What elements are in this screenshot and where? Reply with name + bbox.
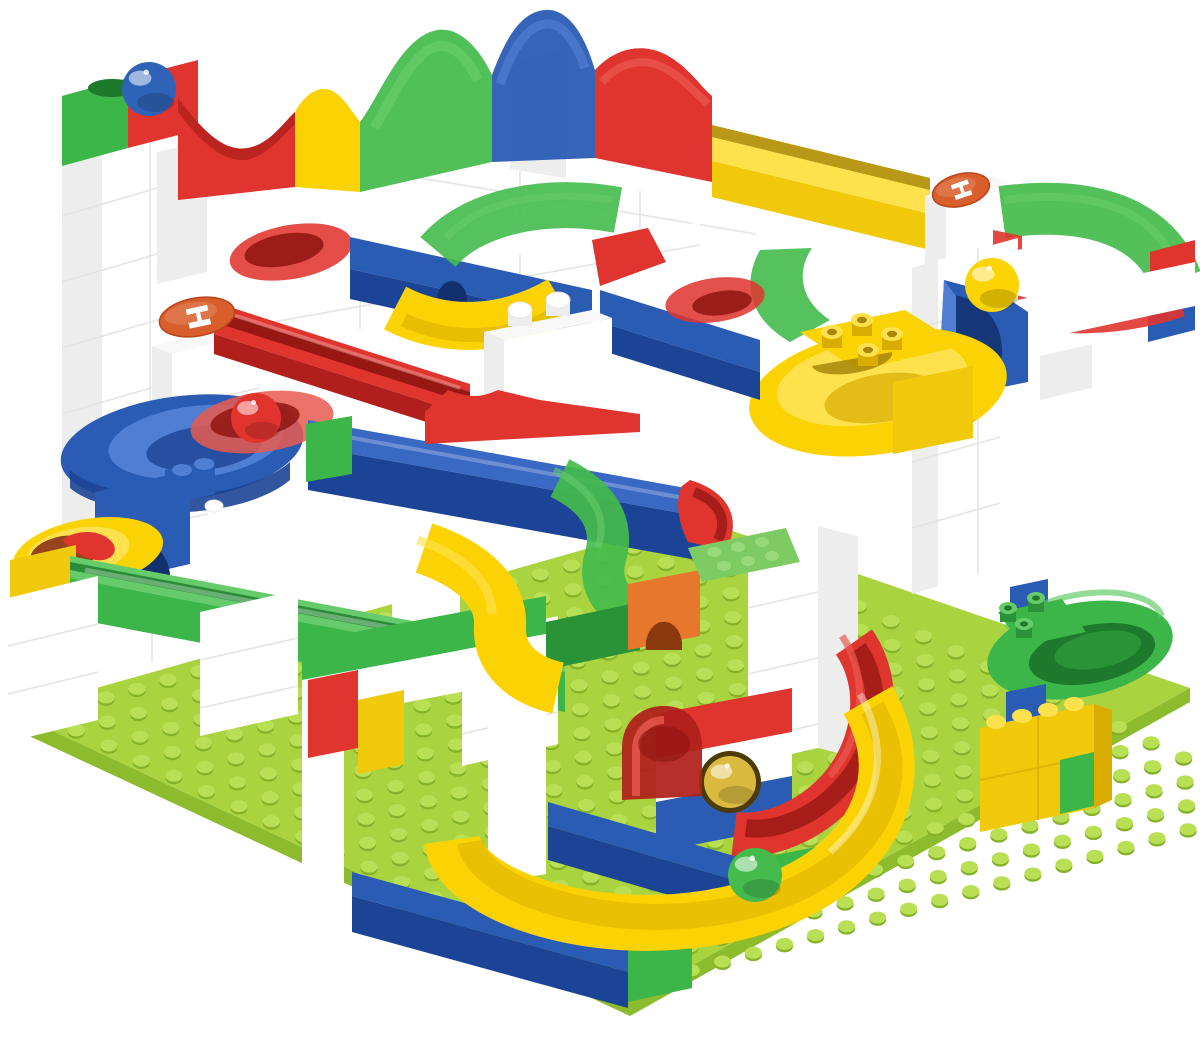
stud (953, 741, 970, 753)
stud (229, 776, 246, 788)
stud (915, 630, 932, 642)
stud (421, 819, 438, 831)
stud (956, 789, 973, 801)
stud (899, 879, 916, 891)
stud (578, 799, 595, 811)
white-pillar (200, 590, 298, 736)
stud (727, 659, 744, 671)
arch-orange (628, 570, 700, 650)
tower-right-step (1018, 238, 1062, 292)
stud (198, 785, 215, 797)
stud (882, 615, 899, 627)
stud (869, 911, 886, 923)
stud (641, 805, 658, 817)
stud (565, 583, 582, 595)
stud (1146, 784, 1163, 796)
stud (919, 702, 936, 714)
top-wave-run (178, 10, 712, 200)
stud (604, 718, 621, 730)
stud (776, 938, 793, 950)
stud (627, 566, 644, 578)
green-brick-end (306, 416, 352, 482)
marble-red-glint (251, 400, 256, 405)
red-brick-small (308, 670, 358, 758)
stud (573, 727, 590, 739)
marble-green-glint (750, 856, 755, 861)
stud-hole (887, 331, 897, 337)
stud (607, 766, 624, 778)
tube-bore (638, 726, 690, 762)
stud (1113, 769, 1130, 781)
yellow-stack-side (1094, 704, 1112, 808)
marble-yellow (965, 258, 1019, 312)
stud (161, 698, 178, 710)
stud (741, 556, 755, 566)
stud (1024, 867, 1041, 879)
stud (99, 716, 116, 728)
stud (717, 561, 731, 571)
stud (1023, 843, 1040, 855)
stud (921, 726, 938, 738)
stud-top (194, 458, 214, 470)
stud (695, 644, 712, 656)
stud (665, 677, 682, 689)
stud (922, 750, 939, 762)
tower-right-step (1040, 344, 1092, 400)
stud (696, 668, 713, 680)
stud-top (1064, 697, 1084, 711)
stud (392, 852, 409, 864)
marble-yellow-shade (980, 289, 1018, 308)
stud (100, 739, 117, 751)
stud (958, 813, 975, 825)
stud-top (546, 292, 570, 308)
stud (634, 685, 651, 697)
stud (797, 761, 814, 773)
stud (723, 587, 740, 599)
stud (361, 861, 378, 873)
stud (1143, 736, 1160, 748)
stud (230, 800, 247, 812)
stud (961, 861, 978, 873)
stud (992, 852, 1009, 864)
stud (414, 699, 431, 711)
marble-blue-shade (137, 93, 175, 112)
stud (868, 887, 885, 899)
stud (1117, 841, 1134, 853)
tube-red-transparent (622, 706, 702, 800)
marble-red (231, 393, 281, 443)
stud (924, 774, 941, 786)
stud (446, 714, 463, 726)
stud (633, 662, 650, 674)
stud (227, 752, 244, 764)
track-blue-wave (492, 10, 595, 162)
stud-top (172, 464, 192, 476)
stud (724, 611, 741, 623)
stud-hole (857, 317, 867, 323)
stud (603, 694, 620, 706)
stud (602, 670, 619, 682)
stud (729, 683, 746, 695)
stud-hole (827, 329, 837, 335)
stud-top (986, 715, 1006, 729)
stud (97, 692, 114, 704)
marble-yellow-hole (704, 756, 756, 808)
stud (949, 669, 966, 681)
stud (159, 674, 176, 686)
stud (1112, 745, 1129, 757)
stud (390, 828, 407, 840)
stud (1086, 850, 1103, 862)
stud (572, 703, 589, 715)
stud (532, 568, 549, 580)
stud (575, 751, 592, 763)
stud (745, 947, 762, 959)
stud (664, 653, 681, 665)
stud (1055, 859, 1072, 871)
yellow-brick-small (358, 690, 404, 774)
stud (1147, 808, 1164, 820)
stud (928, 846, 945, 858)
stud (389, 804, 406, 816)
stud-top (508, 302, 532, 318)
stud (755, 537, 769, 547)
marble-green (728, 848, 782, 902)
stud (452, 810, 469, 822)
stud (606, 742, 623, 754)
stud (990, 828, 1007, 840)
marble-green-shade (743, 879, 781, 898)
stud-hole (863, 347, 873, 353)
stud (950, 693, 967, 705)
stud (726, 635, 743, 647)
stud (563, 559, 580, 571)
marble-blue-glint (144, 70, 149, 75)
stud (1085, 826, 1102, 838)
stud (698, 692, 715, 704)
stud (544, 760, 561, 772)
stud (916, 654, 933, 666)
stud (981, 684, 998, 696)
stud (415, 723, 432, 735)
stud-hole (1032, 595, 1040, 600)
stud (838, 920, 855, 932)
stud (261, 791, 278, 803)
stud (714, 956, 731, 968)
stud (226, 728, 243, 740)
stud (165, 770, 182, 782)
stud (1177, 775, 1194, 787)
white-post-right (1000, 390, 1040, 602)
stud (658, 557, 675, 569)
stud-top (1012, 709, 1032, 723)
stud (897, 855, 914, 867)
track-yellow-crest (295, 89, 360, 192)
marble-red-shade (245, 422, 280, 440)
stud (130, 707, 147, 719)
stud (1054, 835, 1071, 847)
stud (900, 903, 917, 915)
stud (359, 837, 376, 849)
stud (955, 765, 972, 777)
stud (925, 798, 942, 810)
stud (570, 679, 587, 691)
stud (358, 813, 375, 825)
stud-top (1038, 703, 1058, 717)
marble-blue (122, 62, 176, 116)
stud (707, 547, 721, 557)
stud-hole (1020, 621, 1028, 626)
stud (162, 722, 179, 734)
stud (260, 767, 277, 779)
white-wall-support (8, 576, 98, 742)
stud (131, 731, 148, 743)
stud (420, 795, 437, 807)
stud (765, 551, 779, 561)
stud (993, 876, 1010, 888)
green-brick-small (1060, 752, 1094, 814)
stud (947, 645, 964, 657)
stud (1115, 793, 1132, 805)
stud (962, 885, 979, 897)
stud (927, 822, 944, 834)
stud (1149, 832, 1166, 844)
marble-run-illustration: HH (0, 0, 1200, 1046)
porthole-interior (704, 756, 756, 808)
white-stud (205, 500, 223, 512)
stud (387, 780, 404, 792)
stud (451, 786, 468, 798)
stud (263, 815, 280, 827)
stud (356, 789, 373, 801)
stud (259, 743, 276, 755)
stud (545, 784, 562, 796)
stud (195, 737, 212, 749)
stud (918, 678, 935, 690)
marble-yellow-hole-glint (725, 763, 730, 768)
stud (418, 771, 435, 783)
stud (417, 747, 434, 759)
stud (952, 717, 969, 729)
marble-yellow-glint (987, 266, 992, 271)
stud (930, 870, 947, 882)
stud (128, 683, 145, 695)
stud (576, 775, 593, 787)
stud (133, 755, 150, 767)
stud (1144, 760, 1161, 772)
stud (1110, 721, 1127, 733)
stud (1180, 823, 1197, 835)
stud (164, 746, 181, 758)
stud (931, 894, 948, 906)
stud (959, 837, 976, 849)
stud (1178, 799, 1195, 811)
stud (884, 639, 901, 651)
stud (1116, 817, 1133, 829)
product-photo-marble-run: HH (0, 0, 1200, 1046)
stud-hole (1004, 605, 1012, 610)
stud (807, 929, 824, 941)
stud (1175, 751, 1192, 763)
stud (196, 761, 213, 773)
stud (731, 542, 745, 552)
